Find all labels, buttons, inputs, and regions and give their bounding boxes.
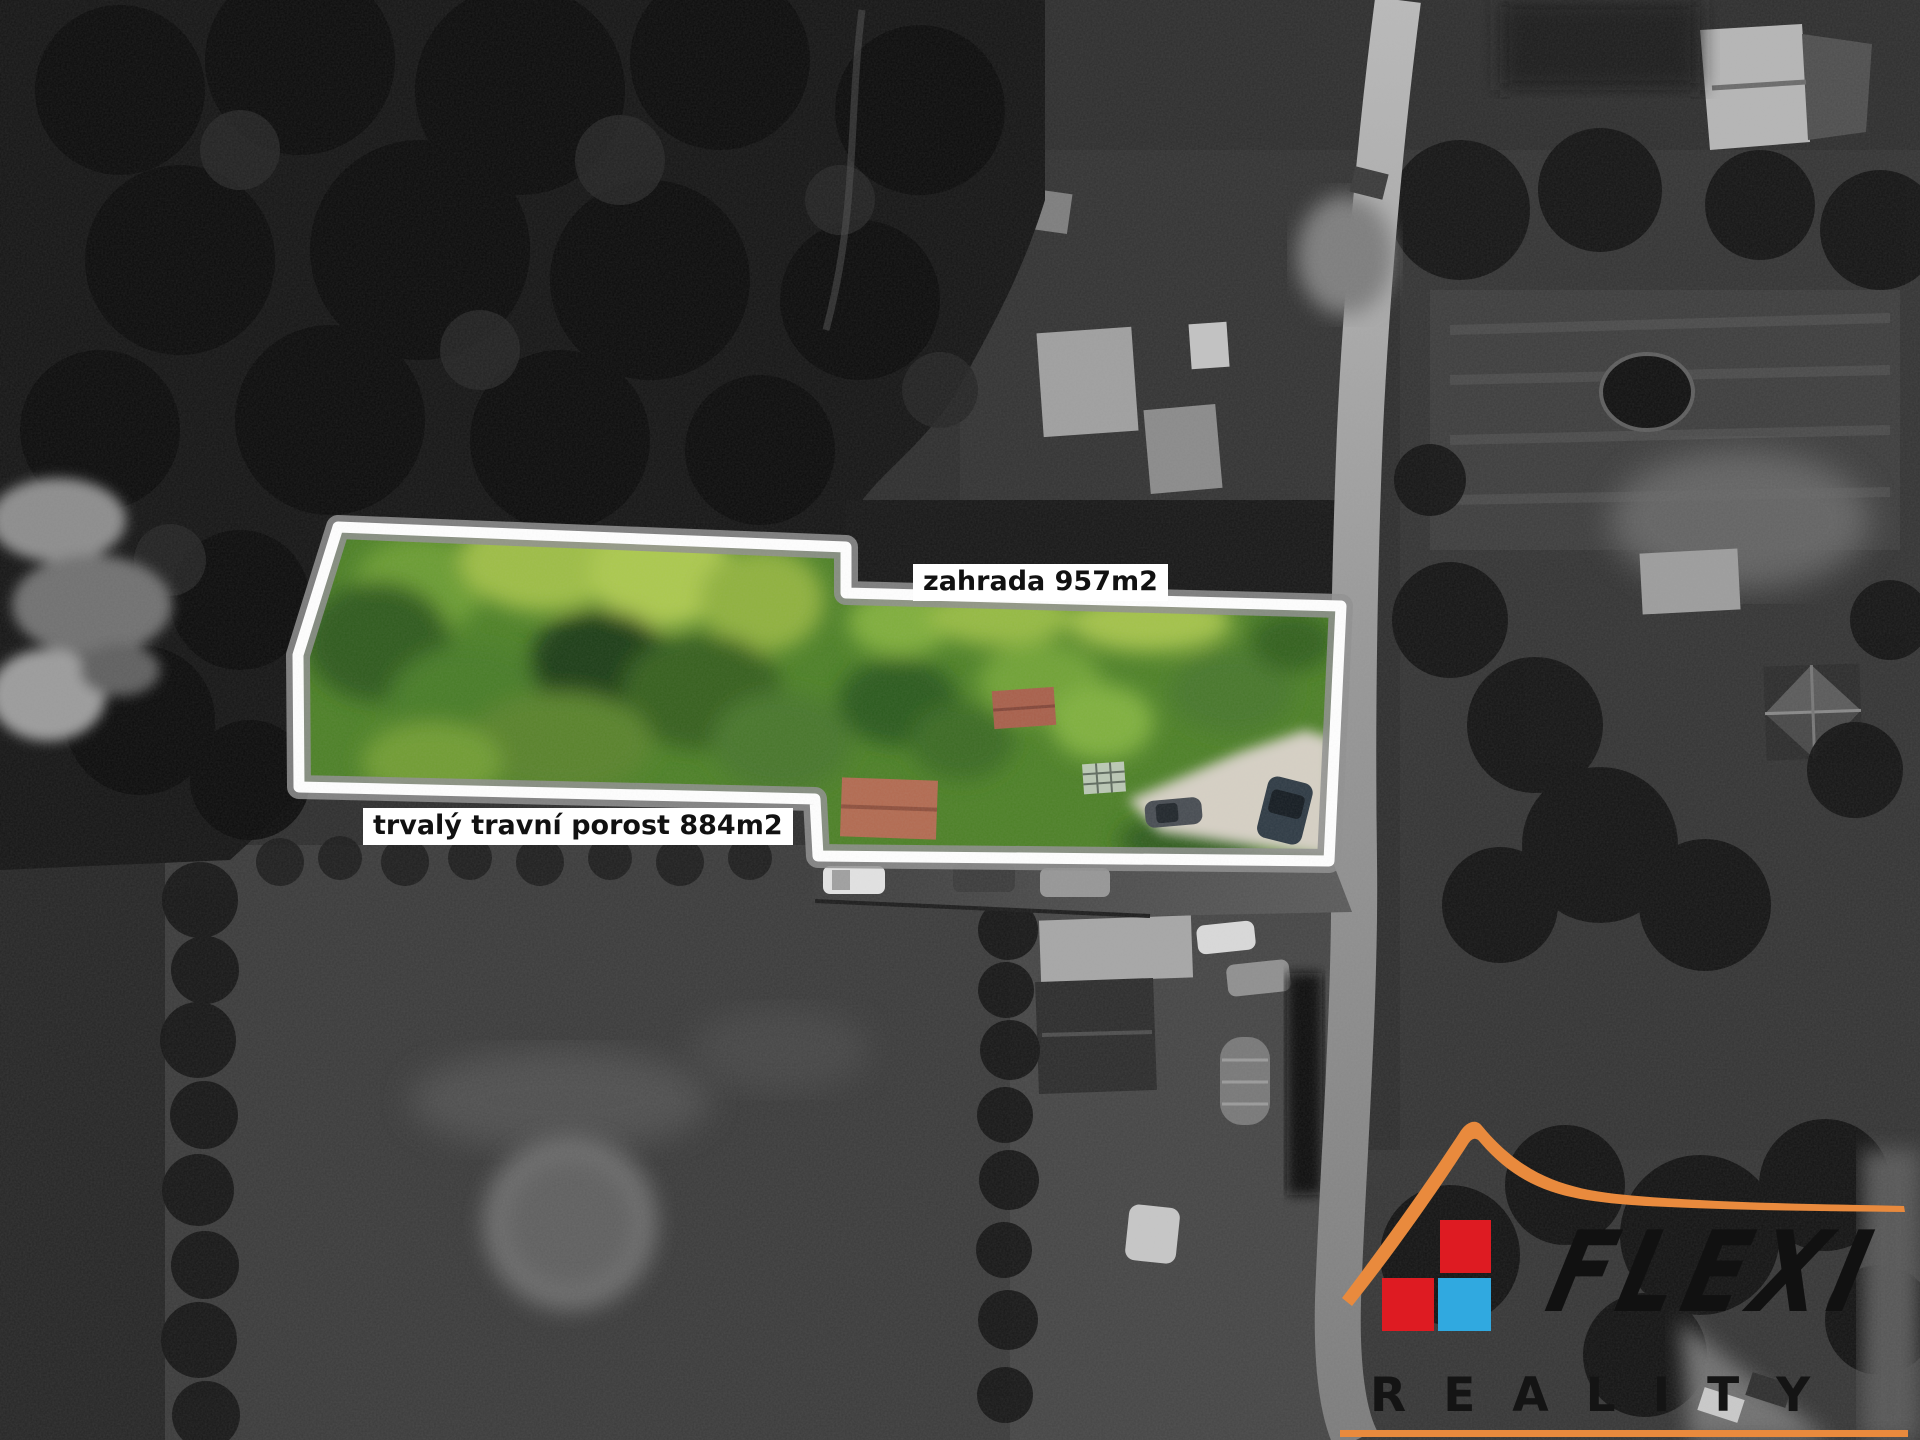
logo-square-red-top xyxy=(1440,1220,1491,1273)
logo-square-red-left xyxy=(1382,1278,1434,1331)
aerial-property-photo: zahrada 957m2 trvalý travní porost 884m2… xyxy=(0,0,1920,1440)
logo-subtitle-text: REALITY xyxy=(1370,1368,1847,1423)
logo-underline xyxy=(1340,1430,1908,1437)
logo-brand-text: FLEXI xyxy=(1536,1208,1890,1338)
agency-logo: FLEXI REALITY xyxy=(1330,1080,1920,1440)
logo-square-blue xyxy=(1438,1278,1491,1331)
grassland-area-label: trvalý travní porost 884m2 xyxy=(363,808,793,845)
garden-area-label: zahrada 957m2 xyxy=(913,564,1168,601)
